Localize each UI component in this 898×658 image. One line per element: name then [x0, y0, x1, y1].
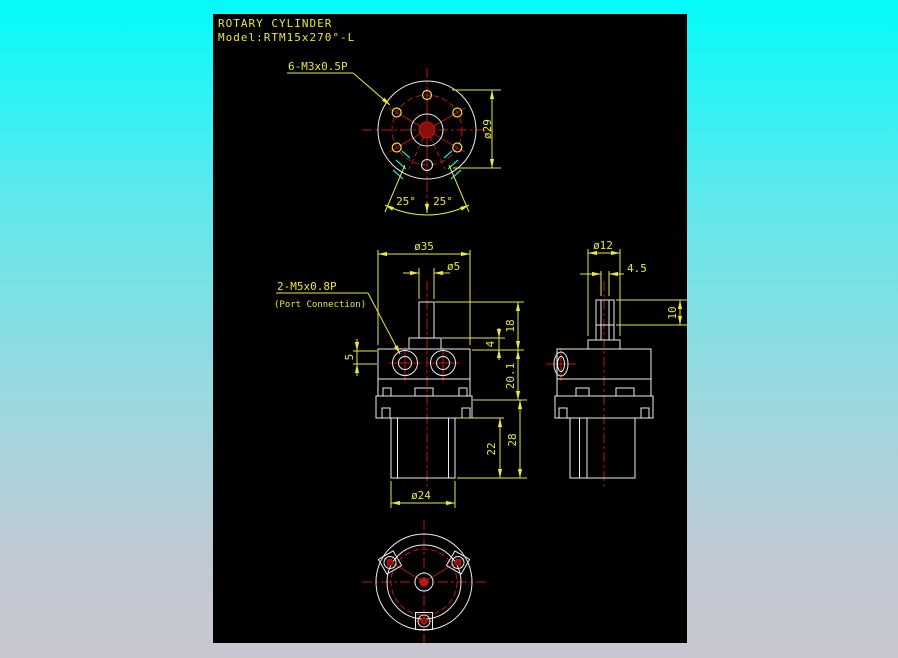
dim-body-width-text: ø35: [414, 240, 434, 253]
dim-shaft-height-text: 18: [504, 319, 517, 332]
front-view: ø35 ø5 2-M5x0.8P (Port Connection) 5: [274, 240, 527, 508]
dim-flat-width: [580, 271, 624, 296]
bottom-center-bore: [420, 578, 429, 587]
dim-bolt-circle-text: ø29: [481, 119, 494, 139]
dim-angle-left-text: 25°: [396, 195, 416, 208]
dim-port-offset: [353, 339, 377, 376]
model-label: Model:RTM15x270°-L: [218, 31, 355, 44]
port-callout-note: (Port Connection): [274, 300, 366, 310]
dim-side-shaft-dia-text: ø12: [593, 239, 613, 252]
port-callout: 2-M5x0.8P: [277, 280, 337, 293]
dim-cyl-height-text: 22: [485, 442, 498, 455]
drawing-title: ROTARY CYLINDER: [218, 17, 332, 30]
dim-port-offset-text: 5: [343, 354, 356, 361]
title-block: ROTARY CYLINDER Model:RTM15x270°-L: [218, 17, 355, 44]
dim-body-height-text: 20.1: [504, 363, 517, 390]
top-view: 6-M3x0.5P ø29 25° 25°: [287, 60, 501, 215]
cad-drawing: ROTARY CYLINDER Model:RTM15x270°-L: [213, 14, 687, 643]
desktop-background: { "colors": { "background_top": "#02FBFB…: [0, 0, 898, 658]
dim-collar-height-text: 4: [484, 340, 497, 347]
center-bore: [419, 122, 435, 138]
dim-shaft-dia-text: ø5: [447, 260, 460, 273]
dim-cyl-dia-text: ø24: [411, 489, 431, 502]
bottom-view: [362, 520, 488, 643]
callout-leader: [353, 73, 390, 105]
dim-angle-right-text: 25°: [433, 195, 453, 208]
dim-lower-height-text: 28: [506, 433, 519, 446]
port-callout-leader: [368, 293, 400, 354]
body-outline: [376, 302, 472, 478]
dim-body-height: [473, 350, 527, 400]
cad-canvas: ROTARY CYLINDER Model:RTM15x270°-L: [213, 14, 687, 643]
side-view: ø12 4.5 10: [546, 239, 687, 490]
thread-callout: 6-M3x0.5P: [288, 60, 348, 73]
dim-flat-width-text: 4.5: [627, 262, 647, 275]
dim-flat-length-text: 10: [666, 306, 679, 319]
